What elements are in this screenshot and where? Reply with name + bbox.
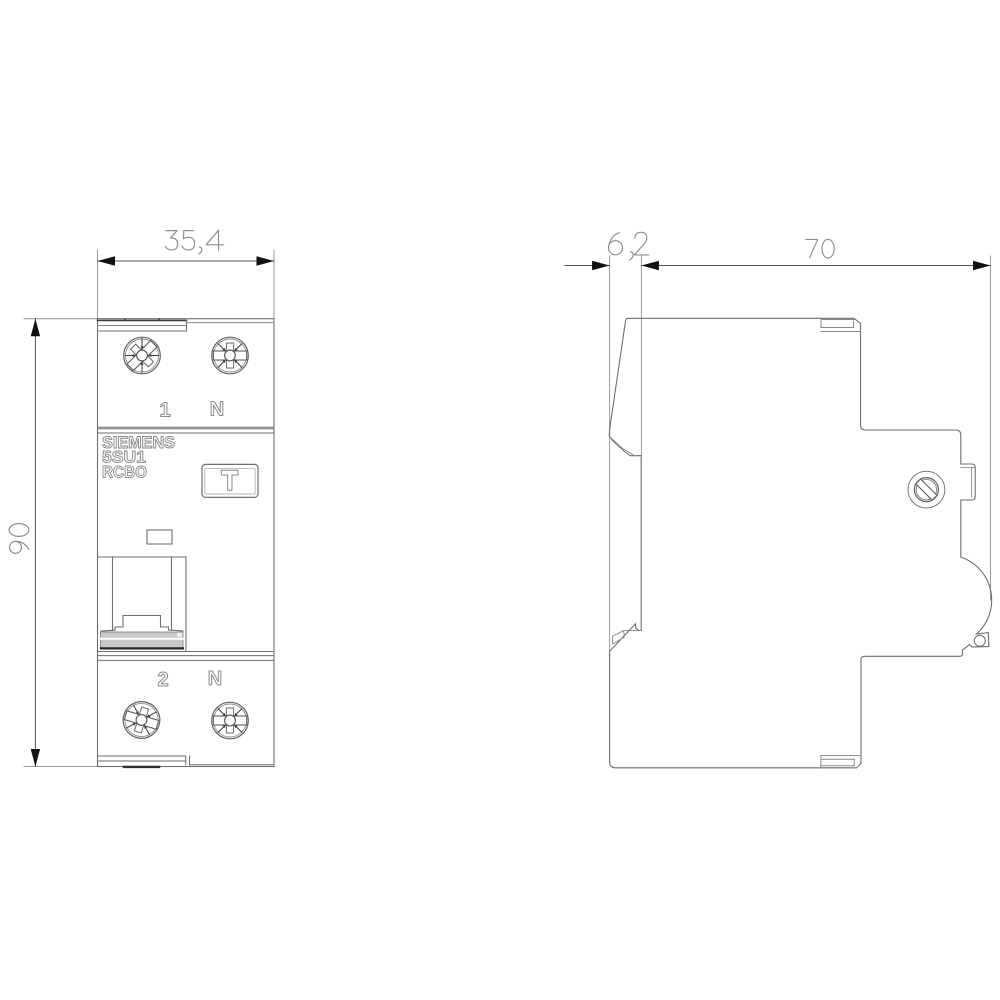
svg-text:1: 1 <box>159 400 170 422</box>
svg-text:2: 2 <box>157 669 168 691</box>
svg-text:RCBO: RCBO <box>102 464 147 482</box>
svg-text:N: N <box>210 399 224 421</box>
svg-text:N: N <box>208 668 222 690</box>
